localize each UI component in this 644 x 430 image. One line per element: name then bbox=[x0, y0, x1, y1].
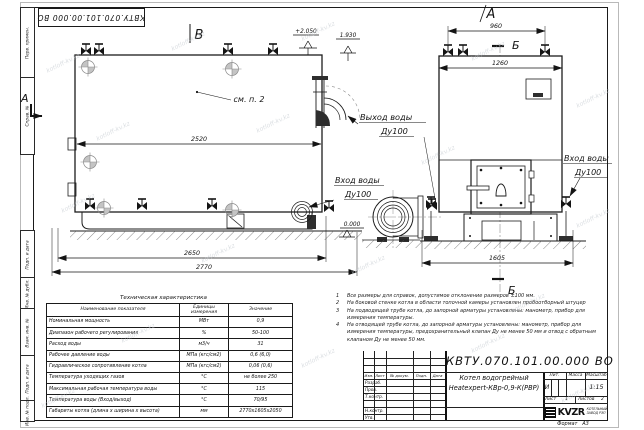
note-item: 3На подводящей трубе котла, до запорной … bbox=[334, 308, 606, 323]
elevation-2050: +2.050 bbox=[295, 29, 317, 35]
valve-icon bbox=[81, 44, 91, 55]
sign-razrab: Разраб. bbox=[365, 380, 381, 385]
title-block: КВТУ.070.101.00.000 ВО Котел водогрейный… bbox=[363, 351, 608, 420]
product-name: Котел водогрейный Heatexpert-КВр-0,9-К(Р… bbox=[446, 374, 542, 394]
sign-tkontr: Т.контр. bbox=[365, 394, 383, 399]
note-item: 1Все размеры для справок, допустимое отк… bbox=[334, 293, 606, 300]
mass-header: Масса bbox=[566, 373, 585, 378]
company-logo-cell: KVZR КОТЕЛЬНЫЙ ЗАВОД РЭП bbox=[544, 404, 608, 420]
sheet-value: 1 bbox=[565, 397, 568, 402]
company-name: КОТЕЛЬНЫЙ ЗАВОД РЭП bbox=[587, 408, 608, 416]
elevation-0000: 0.000 bbox=[344, 222, 361, 228]
product-name-line1: Котел водогрейный bbox=[446, 374, 542, 384]
outlet-label-line1: Выход воды bbox=[360, 112, 413, 122]
spec-header-row: Наименование показателя Единицы измерени… bbox=[47, 304, 293, 317]
col-ndokum: № докум. bbox=[386, 373, 413, 378]
lit-header: Лит. bbox=[543, 373, 566, 378]
spec-table: Наименование показателя Единицы измерени… bbox=[46, 303, 293, 418]
section-label-b-top: Б bbox=[512, 39, 520, 52]
kvzr-logo-icon bbox=[545, 407, 556, 418]
inlet-right-label-line2: Ду100 bbox=[574, 168, 601, 177]
elevation-1930: 1.930 bbox=[340, 33, 357, 39]
note-item: 2На боковой стенке котла в области топоч… bbox=[334, 300, 606, 307]
scale-value: 1:15 bbox=[585, 384, 608, 391]
dim-960: 960 bbox=[490, 23, 502, 30]
section-label-a-top: А bbox=[486, 7, 496, 22]
kvzr-logo-text: KVZR bbox=[558, 407, 585, 418]
section-label-a-left: А bbox=[20, 92, 29, 105]
spec-row: Гидравлическое сопротивление котлаМПа (к… bbox=[47, 361, 293, 372]
lit-value: И bbox=[543, 384, 551, 391]
valve-icon bbox=[268, 44, 278, 55]
dim-1260: 1260 bbox=[492, 60, 508, 67]
spec-row: Температура воды (Вход/выход)°С70/95 bbox=[47, 395, 293, 406]
technical-characteristics: Техническая характеристика Наименование … bbox=[46, 295, 281, 418]
section-label-v: В bbox=[195, 28, 204, 43]
spec-row: Диапазон рабочего регулирования%50-100 bbox=[47, 328, 293, 339]
col-podp: Подп. bbox=[413, 373, 430, 378]
spec-row: Рабочее давление водыМПа (кгс/см2)0,6 (6… bbox=[47, 350, 293, 361]
inlet-left-label-line1: Вход воды bbox=[335, 176, 380, 185]
scale-header: Масштаб bbox=[585, 373, 608, 378]
spec-row: Максимальная рабочая температура воды°С1… bbox=[47, 384, 293, 395]
spec-row: Расход водым3/ч31 bbox=[47, 339, 293, 350]
format-note: Формат А3 bbox=[538, 421, 608, 427]
inlet-left-label-line2: Ду100 bbox=[344, 190, 371, 199]
dim-2520: 2520 bbox=[191, 136, 207, 143]
pedestal bbox=[464, 214, 557, 241]
see-item-note: см. п. 2 bbox=[234, 95, 265, 104]
note-item: 4На отводящей трубе котла, до запорной а… bbox=[334, 322, 606, 344]
col-data: Дата bbox=[430, 373, 445, 378]
door-handle bbox=[467, 186, 489, 190]
sign-nkontr: Н.контр. bbox=[365, 408, 384, 413]
sign-utv: Утв. bbox=[365, 415, 374, 420]
valve-icon bbox=[94, 44, 104, 55]
valve-icon bbox=[458, 45, 468, 56]
notes-list: 1Все размеры для справок, допустимое отк… bbox=[334, 293, 606, 344]
product-name-line2: Heatexpert-КВр-0,9-К(РВР) bbox=[446, 384, 542, 394]
outlet-label-line2: Ду100 bbox=[380, 126, 408, 136]
sheets-label: Листов bbox=[578, 397, 594, 402]
doc-number: КВТУ.070.101.00.000 ВО bbox=[446, 351, 608, 372]
dim-1605: 1605 bbox=[489, 255, 505, 262]
inlet-right-label-line1: Вход воды bbox=[564, 154, 609, 163]
drawing-sheet: КВТУ.070.101.00.000 ВО Перв. примен. Спр… bbox=[0, 0, 644, 430]
valve-icon bbox=[540, 45, 550, 56]
dim-2770: 2770 bbox=[196, 264, 212, 271]
spec-row: Номинальная мощностьМВт0,9 bbox=[47, 317, 293, 328]
dim-2650: 2650 bbox=[184, 250, 200, 257]
sheet-label: Лист bbox=[545, 397, 556, 402]
spec-row: Габариты котла (длина х ширина х высота)… bbox=[47, 406, 293, 417]
sign-prov: Пров. bbox=[365, 387, 377, 392]
spec-row: Температура уходящих газов°Сне более 250 bbox=[47, 372, 293, 383]
col-izm: Изм. bbox=[364, 373, 374, 378]
side-view bbox=[68, 55, 360, 229]
valve-icon bbox=[443, 45, 453, 56]
sheets-value: 2 bbox=[601, 397, 604, 402]
col-list: Лист bbox=[374, 373, 386, 378]
valve-icon bbox=[223, 44, 233, 55]
spec-table-title: Техническая характеристика bbox=[46, 295, 281, 301]
